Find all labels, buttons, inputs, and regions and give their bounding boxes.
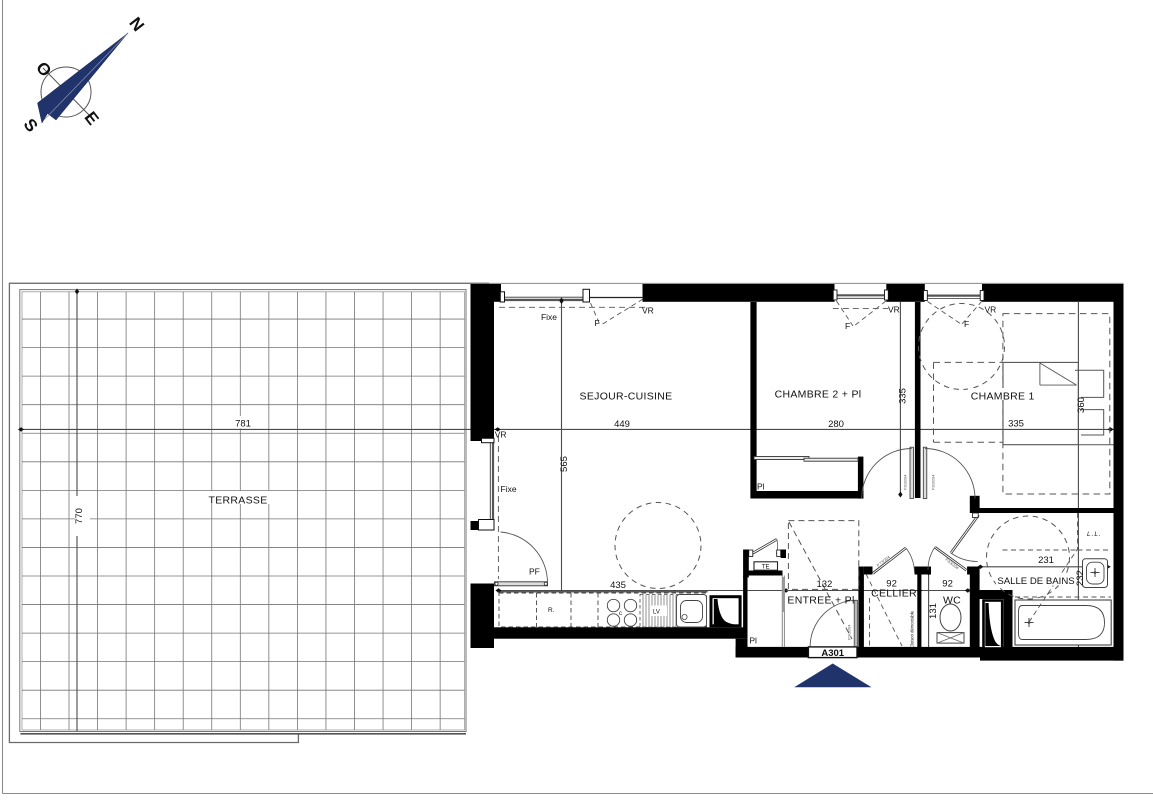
svg-text:SALLE DE BAINS: SALLE DE BAINS bbox=[997, 576, 1074, 587]
svg-text:PF: PF bbox=[529, 567, 540, 577]
svg-text:WC: WC bbox=[943, 595, 961, 607]
svg-text:VR: VR bbox=[888, 305, 900, 315]
svg-text:Pl: Pl bbox=[749, 636, 757, 646]
svg-text:TE: TE bbox=[762, 565, 770, 571]
svg-text:435: 435 bbox=[610, 580, 626, 591]
svg-text:132: 132 bbox=[816, 579, 832, 590]
svg-text:VR: VR bbox=[642, 306, 654, 316]
svg-text:770: 770 bbox=[74, 508, 85, 524]
svg-text:L.L.: L.L. bbox=[1087, 531, 1102, 538]
svg-text:TERRASSE: TERRASSE bbox=[209, 495, 268, 507]
svg-text:565: 565 bbox=[559, 456, 570, 472]
svg-text:SEJOUR-CUISINE: SEJOUR-CUISINE bbox=[580, 391, 673, 403]
svg-text:280: 280 bbox=[828, 419, 844, 430]
svg-text:781: 781 bbox=[235, 419, 251, 430]
svg-text:231: 231 bbox=[1038, 555, 1054, 566]
svg-text:92: 92 bbox=[942, 579, 953, 590]
svg-text:P.83/204: P.83/204 bbox=[903, 474, 908, 490]
svg-text:A301: A301 bbox=[821, 648, 844, 659]
svg-text:VR: VR bbox=[495, 430, 507, 440]
svg-text:335: 335 bbox=[898, 388, 909, 404]
svg-text:Fixe: Fixe bbox=[501, 484, 517, 494]
svg-text:232: 232 bbox=[1075, 570, 1086, 586]
svg-text:F: F bbox=[845, 321, 850, 331]
svg-text:Cloison démontable: Cloison démontable bbox=[910, 610, 915, 648]
svg-text:449: 449 bbox=[614, 419, 630, 430]
svg-text:R.: R. bbox=[548, 607, 555, 614]
svg-text:F: F bbox=[595, 318, 600, 328]
svg-text:Fixe: Fixe bbox=[541, 312, 557, 322]
svg-text:92: 92 bbox=[886, 579, 897, 590]
svg-text:360: 360 bbox=[1076, 397, 1087, 413]
svg-text:ENTREE + Pl: ENTREE + Pl bbox=[787, 595, 854, 607]
svg-text:VR: VR bbox=[985, 305, 997, 315]
svg-text:335: 335 bbox=[1008, 419, 1024, 430]
svg-text:F: F bbox=[964, 319, 969, 329]
svg-text:CHAMBRE 2 + Pl: CHAMBRE 2 + Pl bbox=[775, 389, 862, 401]
svg-text:c: c bbox=[619, 611, 622, 617]
svg-text:LV: LV bbox=[653, 610, 660, 616]
svg-text:CHAMBRE 1: CHAMBRE 1 bbox=[971, 391, 1035, 403]
svg-text:Pl: Pl bbox=[757, 482, 765, 492]
svg-text:131: 131 bbox=[928, 603, 939, 619]
svg-text:P.83/204: P.83/204 bbox=[931, 474, 936, 490]
